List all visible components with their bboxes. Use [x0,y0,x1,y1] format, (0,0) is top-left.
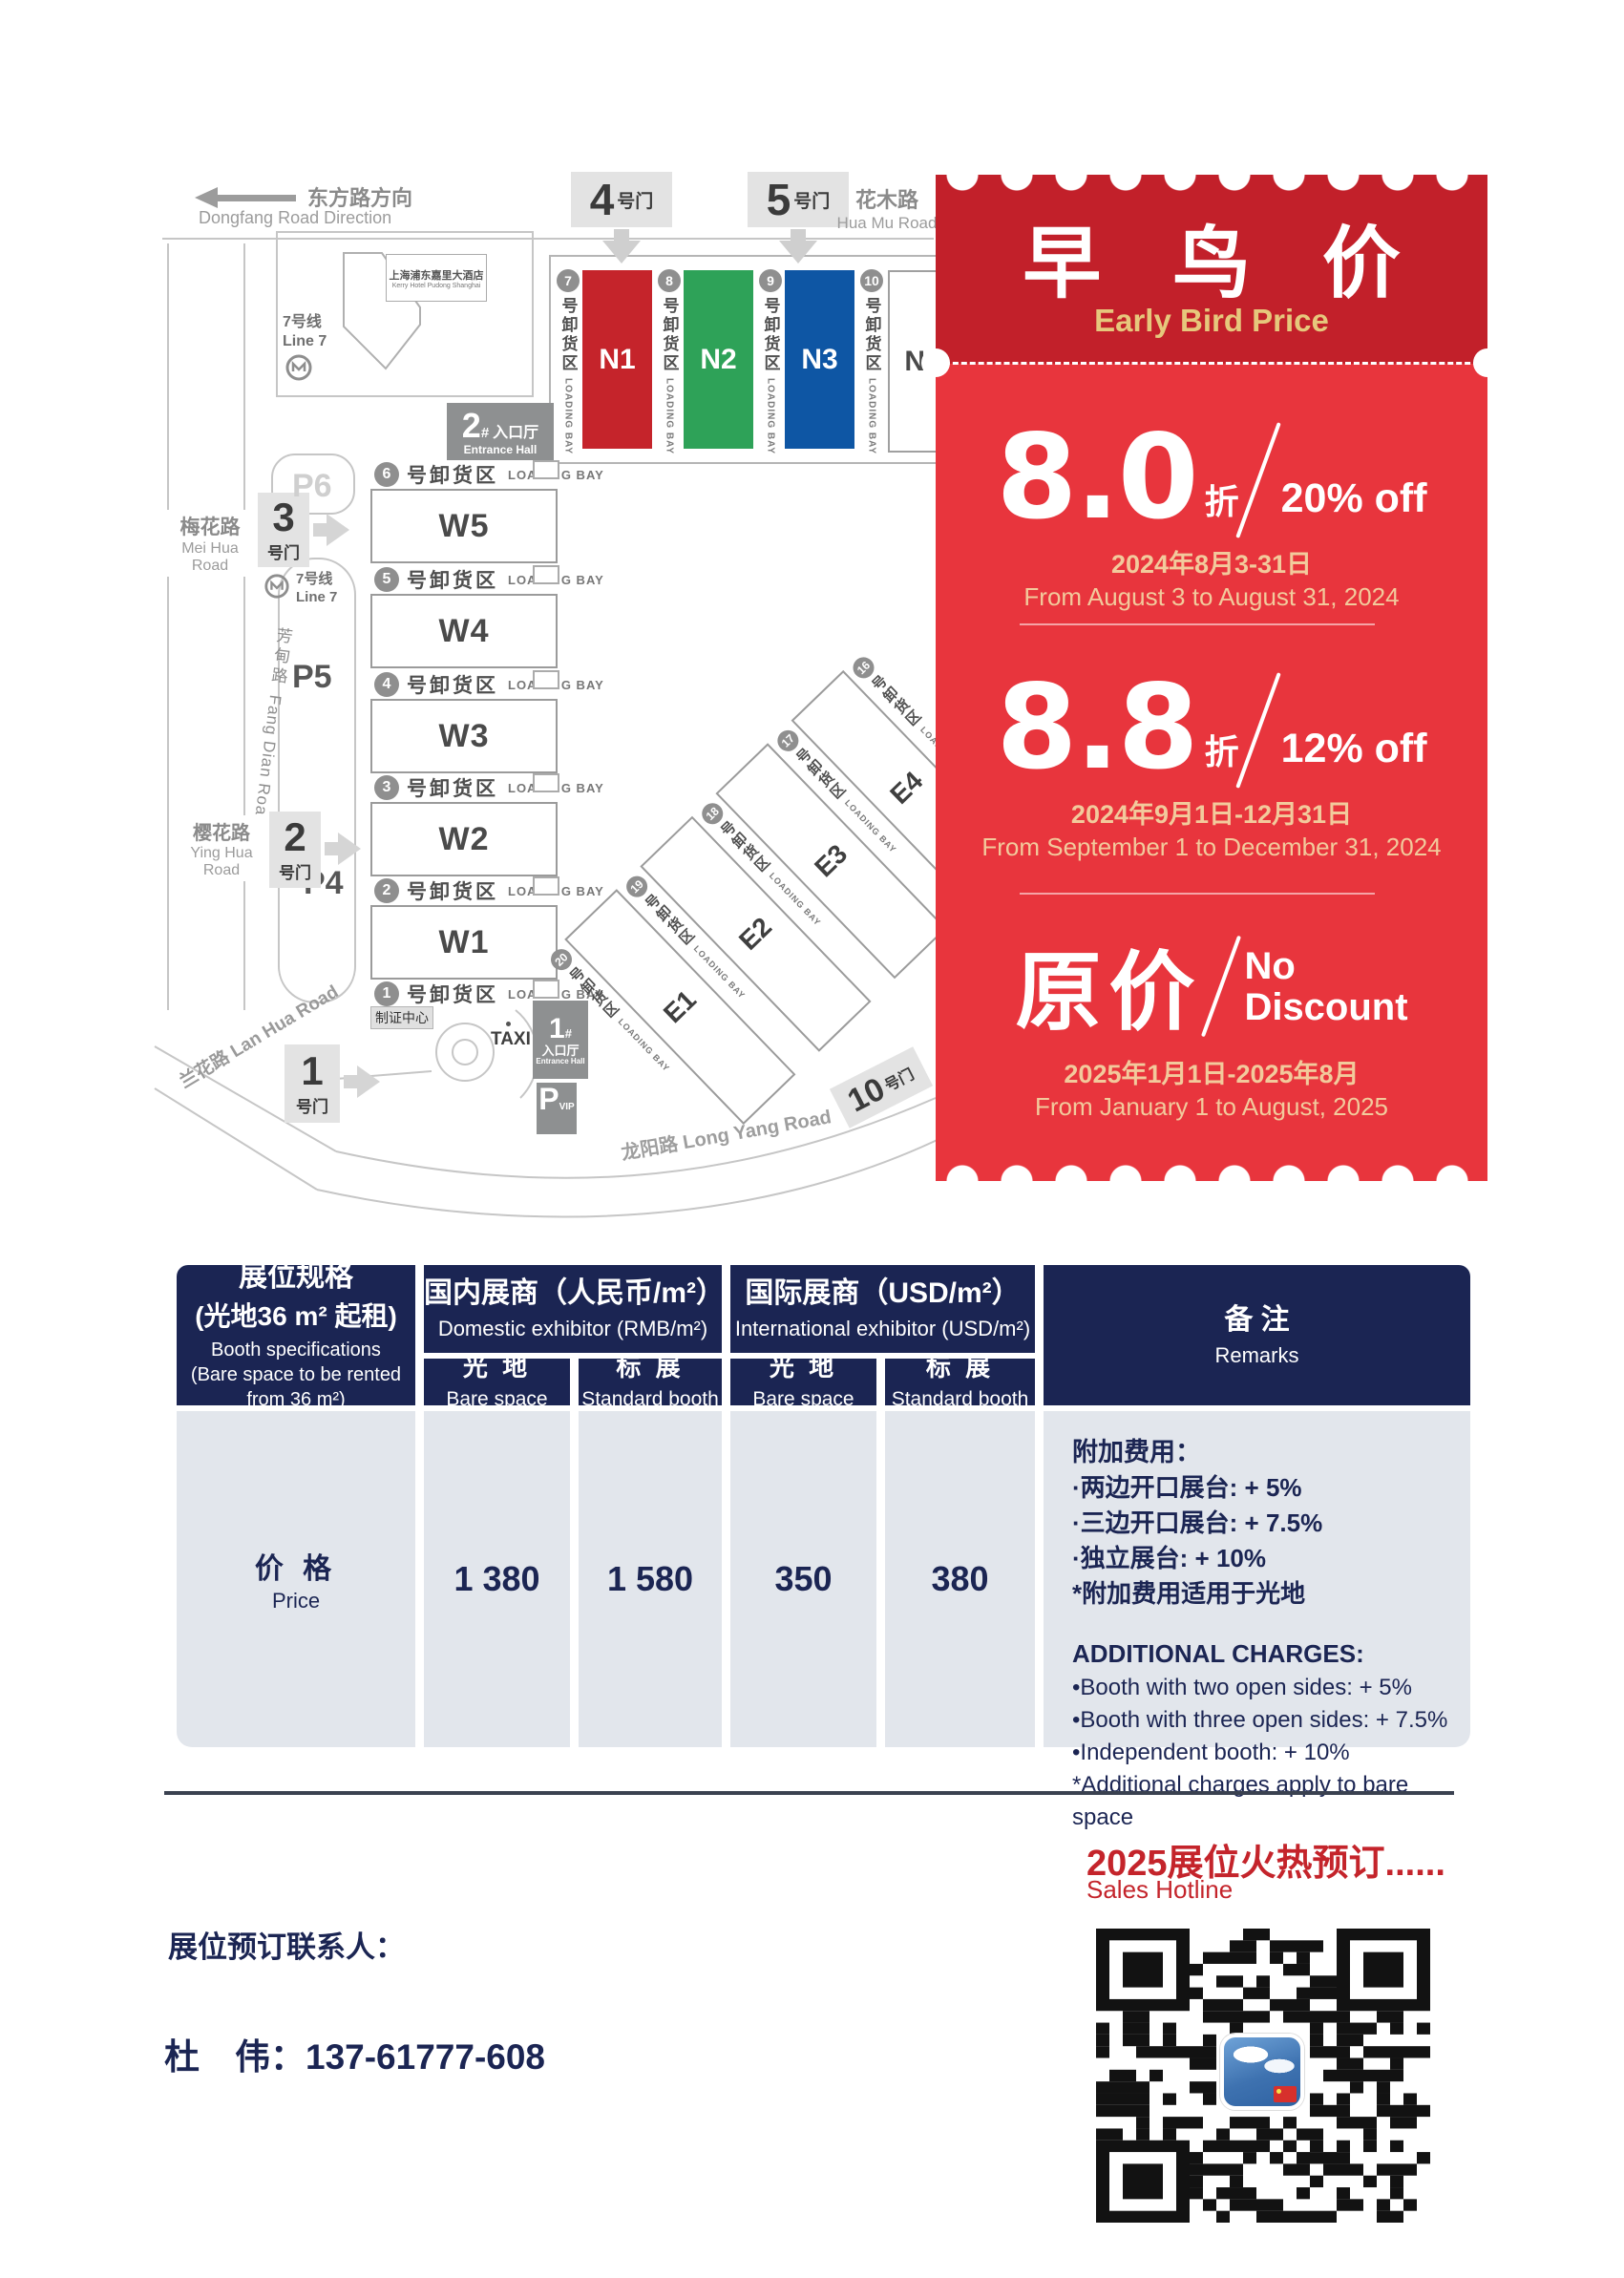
slash-icon [1235,422,1281,538]
tier-2: 8.8 折 12% off 2024年9月1日-12月31日 From Sept… [936,669,1487,862]
contact-phone: 杜 伟：137-61777-608 [164,2028,545,2079]
booking-contact-label: 展位预订联系人： [168,1923,405,1966]
badge-center: 制证中心 [370,1006,433,1029]
tier-3: 原价 No Discount 2025年1月1日-2025年8月 From Ja… [936,933,1487,1122]
dock-door [533,670,559,689]
hall-w3: W3 [370,699,558,773]
loading-bay-4: 4 号卸货区 LOADING BAY [374,672,604,697]
taxi-label: TAXI [491,1029,531,1050]
kerry-hotel-label: 上海浦东嘉里大酒店 Kerry Hotel Pudong Shanghai [386,254,487,302]
loading-bay-10: 10 号卸货区 LOADING BAY [859,269,884,454]
metro-icon [264,573,290,600]
subheader-bare-intl: 光 地 Bare space [730,1359,876,1405]
price-domestic-standard: 1 580 [579,1411,722,1747]
tier-separator [1020,623,1375,625]
hall-n3: N3 [785,270,854,449]
ticket-title-en: Early Bird Price [936,303,1487,339]
loading-bay-5: 5 号卸货区 LOADING BAY [374,567,604,592]
loading-bay-3: 3 号卸货区 LOADING BAY [374,775,604,800]
road-dongfang-en: Dongfang Road Direction [199,208,391,228]
vip-parking: P VIP [537,1083,577,1134]
hall-w1: W1 [370,905,558,980]
header-international: 国际展商（USD/m²） International exhibitor (US… [730,1265,1035,1353]
taxi-dot [506,1022,511,1026]
china-flag-icon [1274,2086,1297,2102]
subheader-bare-domestic: 光 地 Bare space [424,1359,570,1405]
ticket-notch-left [921,348,950,377]
qr-avatar [1220,2034,1304,2110]
gate-2-arrow-icon [325,833,361,865]
ticket-title-zh: 早 鸟 价 [936,200,1487,313]
entrance-hall-1: 1 # 入口厅 Entrance Hall [533,1001,588,1079]
flyer-page: 东方路方向 Dongfang Road Direction 4 号门 5 号门 … [0,0,1624,2278]
tier-separator [1020,893,1375,895]
loading-bay-8: 8 号卸货区 LOADING BAY [657,269,682,454]
gate-1: 1 号门 [285,1044,340,1123]
gate-4: 4 号门 [571,172,672,227]
subheader-standard-domestic: 标 展 Standard booth [579,1359,722,1405]
header-domestic: 国内展商（人民币/m²） Domestic exhibitor (RMB/m²) [424,1265,722,1353]
dock-door [533,876,559,896]
road-meihua: 梅花路 Mei Hua Road [164,510,256,577]
subheader-standard-intl: 标 展 Standard booth [885,1359,1035,1405]
road-huamu: 花木路 Hua Mu Road [823,183,951,233]
header-remarks: 备 注 Remarks [1044,1265,1470,1405]
parking-p5: P5 [292,659,332,696]
remarks-content: 附加费用： ·两边开口展台: + 5% ·三边开口展台: + 7.5% ·独立展… [1044,1411,1470,1747]
gate-1-arrow-icon [344,1065,380,1098]
dock-door [533,773,559,792]
dock-door [533,565,559,584]
footer-divider [164,1791,1454,1795]
slash-icon [1201,936,1241,1038]
dongfang-arrow-icon [195,187,218,208]
hall-w5: W5 [370,489,558,563]
gate-5-arrow-icon [779,229,817,264]
gate-2: 2 号门 [269,812,321,888]
slash-icon [1235,672,1281,789]
price-domestic-bare: 1 380 [424,1411,570,1747]
dock-door [533,460,559,479]
ticket-notch-right [1473,348,1502,377]
price-table: 展位规格 (光地36 m² 起租) Booth specifications (… [177,1265,1470,1747]
loading-bay-7: 7 号卸货区 LOADING BAY [556,269,580,454]
loading-bay-6: 6 号卸货区 LOADING BAY [374,462,604,487]
hall-n1: N1 [582,270,652,449]
ticket-perforation [936,362,1487,365]
line7-upper-label: 7号线 Line 7 [283,313,327,351]
ticket-header: 早 鸟 价 Early Bird Price [936,175,1487,364]
loading-bay-9: 9 号卸货区 LOADING BAY [758,269,783,454]
tier-1: 8.0 折 20% off 2024年8月3-31日 From August 3… [936,419,1487,612]
entrance-hall-2: 2 # 入口厅 Entrance Hall [447,403,554,460]
gate-4-arrow-icon [602,229,641,264]
price-intl-standard: 380 [885,1411,1035,1747]
early-bird-ticket: 早 鸟 价 Early Bird Price 8.0 折 20% off 202… [936,175,1487,1181]
hall-n2: N2 [684,270,753,449]
line7-mid-label: 7号线 Line 7 [296,571,337,607]
road-yinghua: 樱花路 Ying Hua Road [172,815,271,881]
loading-bay-2: 2 号卸货区 LOADING BAY [374,878,604,903]
header-booth-spec: 展位规格 (光地36 m² 起租) Booth specifications (… [177,1265,415,1405]
sales-hotline-label: Sales Hotline [1086,1875,1233,1905]
hall-w4: W4 [370,594,558,668]
row-price-label: 价 格 Price [177,1411,415,1747]
parking-p6: P6 [292,468,332,505]
price-intl-bare: 350 [730,1411,876,1747]
dock-door [533,980,559,999]
dongfang-arrow-bar [216,195,296,201]
gate-3-arrow-icon [313,514,349,546]
hall-w2: W2 [370,802,558,876]
metro-icon [285,353,313,382]
ticket-body: 8.0 折 20% off 2024年8月3-31日 From August 3… [936,364,1487,1181]
